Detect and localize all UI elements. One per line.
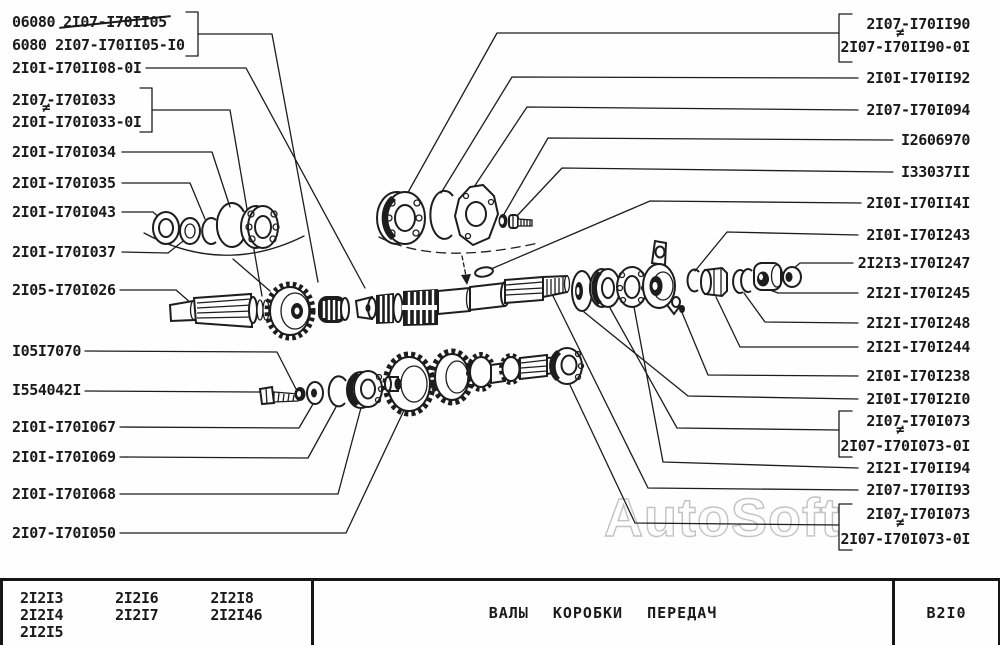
part-number-label[interactable]: 2I0I-I70II08-0I [12,60,141,76]
struck-part-number: 2I07-I70II05 [63,14,167,30]
part-number-label[interactable]: 2I07-I70I050 [12,525,116,541]
title-block: 2I2I3 2I2I4 2I2I5 2I2I6 2I2I7 2I2I8 2I2I… [0,578,1000,645]
model-code: 2I2I6 [115,590,158,607]
part-number-label-superseded[interactable]: 060802I07-I70II05 [12,14,167,30]
part-number-label[interactable]: 2I07-I70I073-0I [841,438,970,454]
part-number-label[interactable]: 2I2I-I70I245 [866,285,970,301]
parts-catalog-sheet: AutoSoft [0,0,1000,645]
part-number-label[interactable]: 2I07-I70II90 [866,16,970,32]
part-number-label[interactable]: 2I0I-I70I033-0I [12,114,141,130]
part-number-label[interactable]: I554042I [12,382,81,398]
part-number-label[interactable]: 2I0I-I70I043 [12,204,116,220]
part-number-label[interactable]: 2I0I-I70I2I0 [866,391,970,407]
part-number-label[interactable]: 2I05-I70I026 [12,282,116,298]
model-code: 2I2I5 [20,624,63,641]
part-number-label[interactable]: 2I0I-I70I067 [12,419,116,435]
part-number-label[interactable]: 2I07-I70I094 [866,102,970,118]
part-number-label[interactable]: 2I0I-I70II4I [866,195,970,211]
model-code: 2I2I8 [210,590,262,607]
part-number-label[interactable]: I2606970 [901,132,970,148]
not-interchangeable-mark: ≠ [42,100,50,116]
part-number-label[interactable]: 2I2I-I70I244 [866,339,970,355]
part-number-label[interactable]: 2I0I-I70I035 [12,175,116,191]
part-number-label[interactable]: 2I2I3-I70I247 [858,255,970,271]
part-number-label[interactable]: 2I07-I70II93 [866,482,970,498]
not-interchangeable-mark: ≠ [896,25,904,41]
part-number-label[interactable]: 2I07-I70I073 [866,506,970,522]
model-code: 2I2I46 [210,607,262,624]
part-number-label[interactable]: 2I0I-I70I238 [866,368,970,384]
part-number-label[interactable]: 6080 2I07-I70II05-I0 [12,37,185,53]
part-number-labels: 060802I07-I70II05 6080 2I07-I70II05-I0 2… [0,0,1000,578]
part-number-label[interactable]: 2I07-I70I073-0I [841,531,970,547]
part-number-label[interactable]: 2I0I-I70I034 [12,144,116,160]
part-number-label[interactable]: 2I0I-I70I037 [12,244,116,260]
part-number-label[interactable]: 2I07-I70I073 [866,413,970,429]
sheet-code-cell: В2I0 [892,581,998,645]
part-count: 06080 [12,13,55,31]
part-number-label[interactable]: 2I07-I70I033 [12,92,116,108]
not-interchangeable-mark: ≠ [896,515,904,531]
part-number-label[interactable]: 2I2I-I70II94 [866,460,970,476]
part-number-label[interactable]: 2I0I-I70II92 [866,70,970,86]
part-number-label[interactable]: 2I0I-I70I068 [12,486,116,502]
part-number-label[interactable]: I05I7070 [12,343,81,359]
model-column: 2I2I3 2I2I4 2I2I5 [20,590,63,645]
part-number-label[interactable]: 2I0I-I70I243 [866,227,970,243]
sheet-code: В2I0 [926,604,966,622]
model-column: 2I2I8 2I2I46 [210,590,262,645]
sheet-title: ВАЛЫ КОРОБКИ ПЕРЕДАЧ [489,604,718,622]
sheet-title-cell: ВАЛЫ КОРОБКИ ПЕРЕДАЧ [314,581,892,645]
part-number-label[interactable]: 2I2I-I70I248 [866,315,970,331]
applicable-models-cell: 2I2I3 2I2I4 2I2I5 2I2I6 2I2I7 2I2I8 2I2I… [3,581,314,645]
part-number-label[interactable]: 2I0I-I70I069 [12,449,116,465]
part-number-label[interactable]: I33037II [901,164,970,180]
model-code: 2I2I3 [20,590,63,607]
not-interchangeable-mark: ≠ [896,422,904,438]
model-code: 2I2I4 [20,607,63,624]
part-number-label[interactable]: 2I07-I70II90-0I [841,39,970,55]
model-column: 2I2I6 2I2I7 [115,590,158,645]
model-code: 2I2I7 [115,607,158,624]
